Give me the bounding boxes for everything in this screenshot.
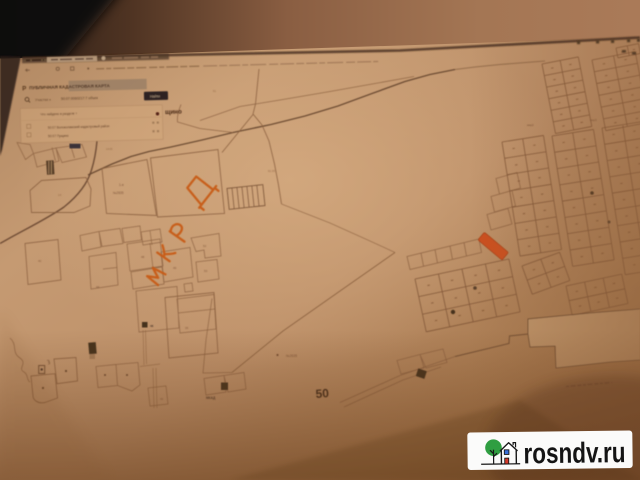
svg-text:Найти: Найти: [150, 94, 160, 98]
svg-text:48: 48: [141, 255, 145, 259]
svg-text:61:05: 61:05: [268, 169, 275, 173]
svg-text:53: 53: [204, 269, 208, 273]
svg-text:1-я: 1-я: [119, 183, 124, 187]
svg-text:49: 49: [173, 266, 177, 270]
svg-text:Р: Р: [22, 86, 26, 92]
svg-text:rosndv.ru: rosndv.ru: [523, 437, 625, 470]
svg-text:35: 35: [185, 326, 189, 330]
svg-text:14:05: 14:05: [106, 147, 113, 151]
svg-text:48: 48: [150, 324, 154, 328]
svg-text:50:07 Пущино: 50:07 Пущино: [48, 134, 69, 139]
svg-text:40: 40: [38, 259, 42, 263]
svg-text:Участки ▾: Участки ▾: [35, 98, 51, 102]
svg-text:44: 44: [96, 285, 100, 289]
svg-text:52: 52: [203, 244, 207, 248]
svg-text:№2835: №2835: [113, 191, 124, 195]
svg-text:14: 14: [58, 193, 62, 197]
svg-text:щино: щино: [165, 108, 182, 115]
